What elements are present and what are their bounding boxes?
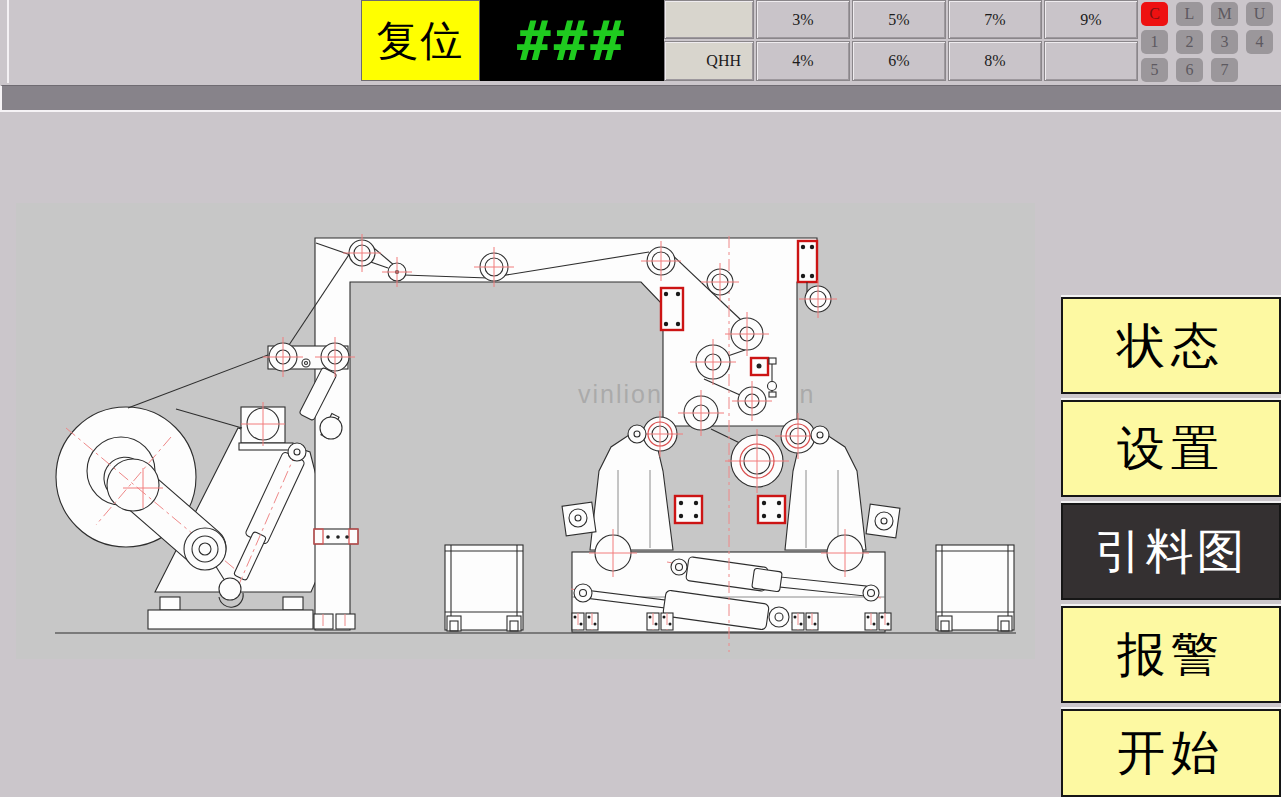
- panel-divider: [7, 0, 9, 83]
- unwinder-station: [56, 350, 333, 629]
- keypad: C L M U 1 2 3 4 5 6 7: [1141, 2, 1281, 82]
- menu-button-settings[interactable]: 设置: [1061, 400, 1281, 497]
- keypad-button-6[interactable]: 6: [1176, 58, 1203, 82]
- status-bar: [0, 85, 1281, 112]
- percent-button-9[interactable]: 9%: [1044, 0, 1138, 39]
- percent-button-7[interactable]: 7%: [948, 0, 1042, 39]
- keypad-button-m[interactable]: M: [1211, 2, 1238, 26]
- qhh-button[interactable]: QHH: [664, 41, 754, 81]
- menu-button-material-diagram[interactable]: 引料图: [1061, 503, 1281, 600]
- percent-button-8[interactable]: 8%: [948, 41, 1042, 81]
- grid-cell-empty: [664, 0, 754, 39]
- menu-button-start[interactable]: 开始: [1061, 709, 1281, 797]
- reset-button[interactable]: 复位: [361, 0, 480, 81]
- keypad-button-c[interactable]: C: [1141, 2, 1168, 26]
- grid-cell-empty: [1044, 41, 1138, 81]
- keypad-button-4[interactable]: 4: [1246, 30, 1273, 54]
- menu-button-status[interactable]: 状态: [1061, 297, 1281, 394]
- keypad-button-5[interactable]: 5: [1141, 58, 1168, 82]
- keypad-button-3[interactable]: 3: [1211, 30, 1238, 54]
- pallet-box-left: [445, 545, 523, 631]
- percent-button-5[interactable]: 5%: [852, 0, 946, 39]
- menu-button-alarm[interactable]: 报警: [1061, 606, 1281, 703]
- led-display: ###: [480, 0, 664, 81]
- machine-diagram: vinlion automation: [16, 203, 1035, 659]
- diagram-canvas: vinlion automation: [16, 203, 1035, 659]
- top-left-panel: [0, 0, 360, 83]
- keypad-button-u[interactable]: U: [1246, 2, 1273, 26]
- keypad-button-1[interactable]: 1: [1141, 30, 1168, 54]
- percent-button-4[interactable]: 4%: [756, 41, 850, 81]
- keypad-button-2[interactable]: 2: [1176, 30, 1203, 54]
- keypad-button-l[interactable]: L: [1176, 2, 1203, 26]
- percent-button-grid: 3% 5% 7% 9% QHH 4% 6% 8%: [664, 0, 1138, 81]
- press-frames: [590, 431, 866, 550]
- pallet-box-right: [936, 545, 1014, 631]
- keypad-button-7[interactable]: 7: [1211, 58, 1238, 82]
- percent-button-6[interactable]: 6%: [852, 41, 946, 81]
- percent-button-3[interactable]: 3%: [756, 0, 850, 39]
